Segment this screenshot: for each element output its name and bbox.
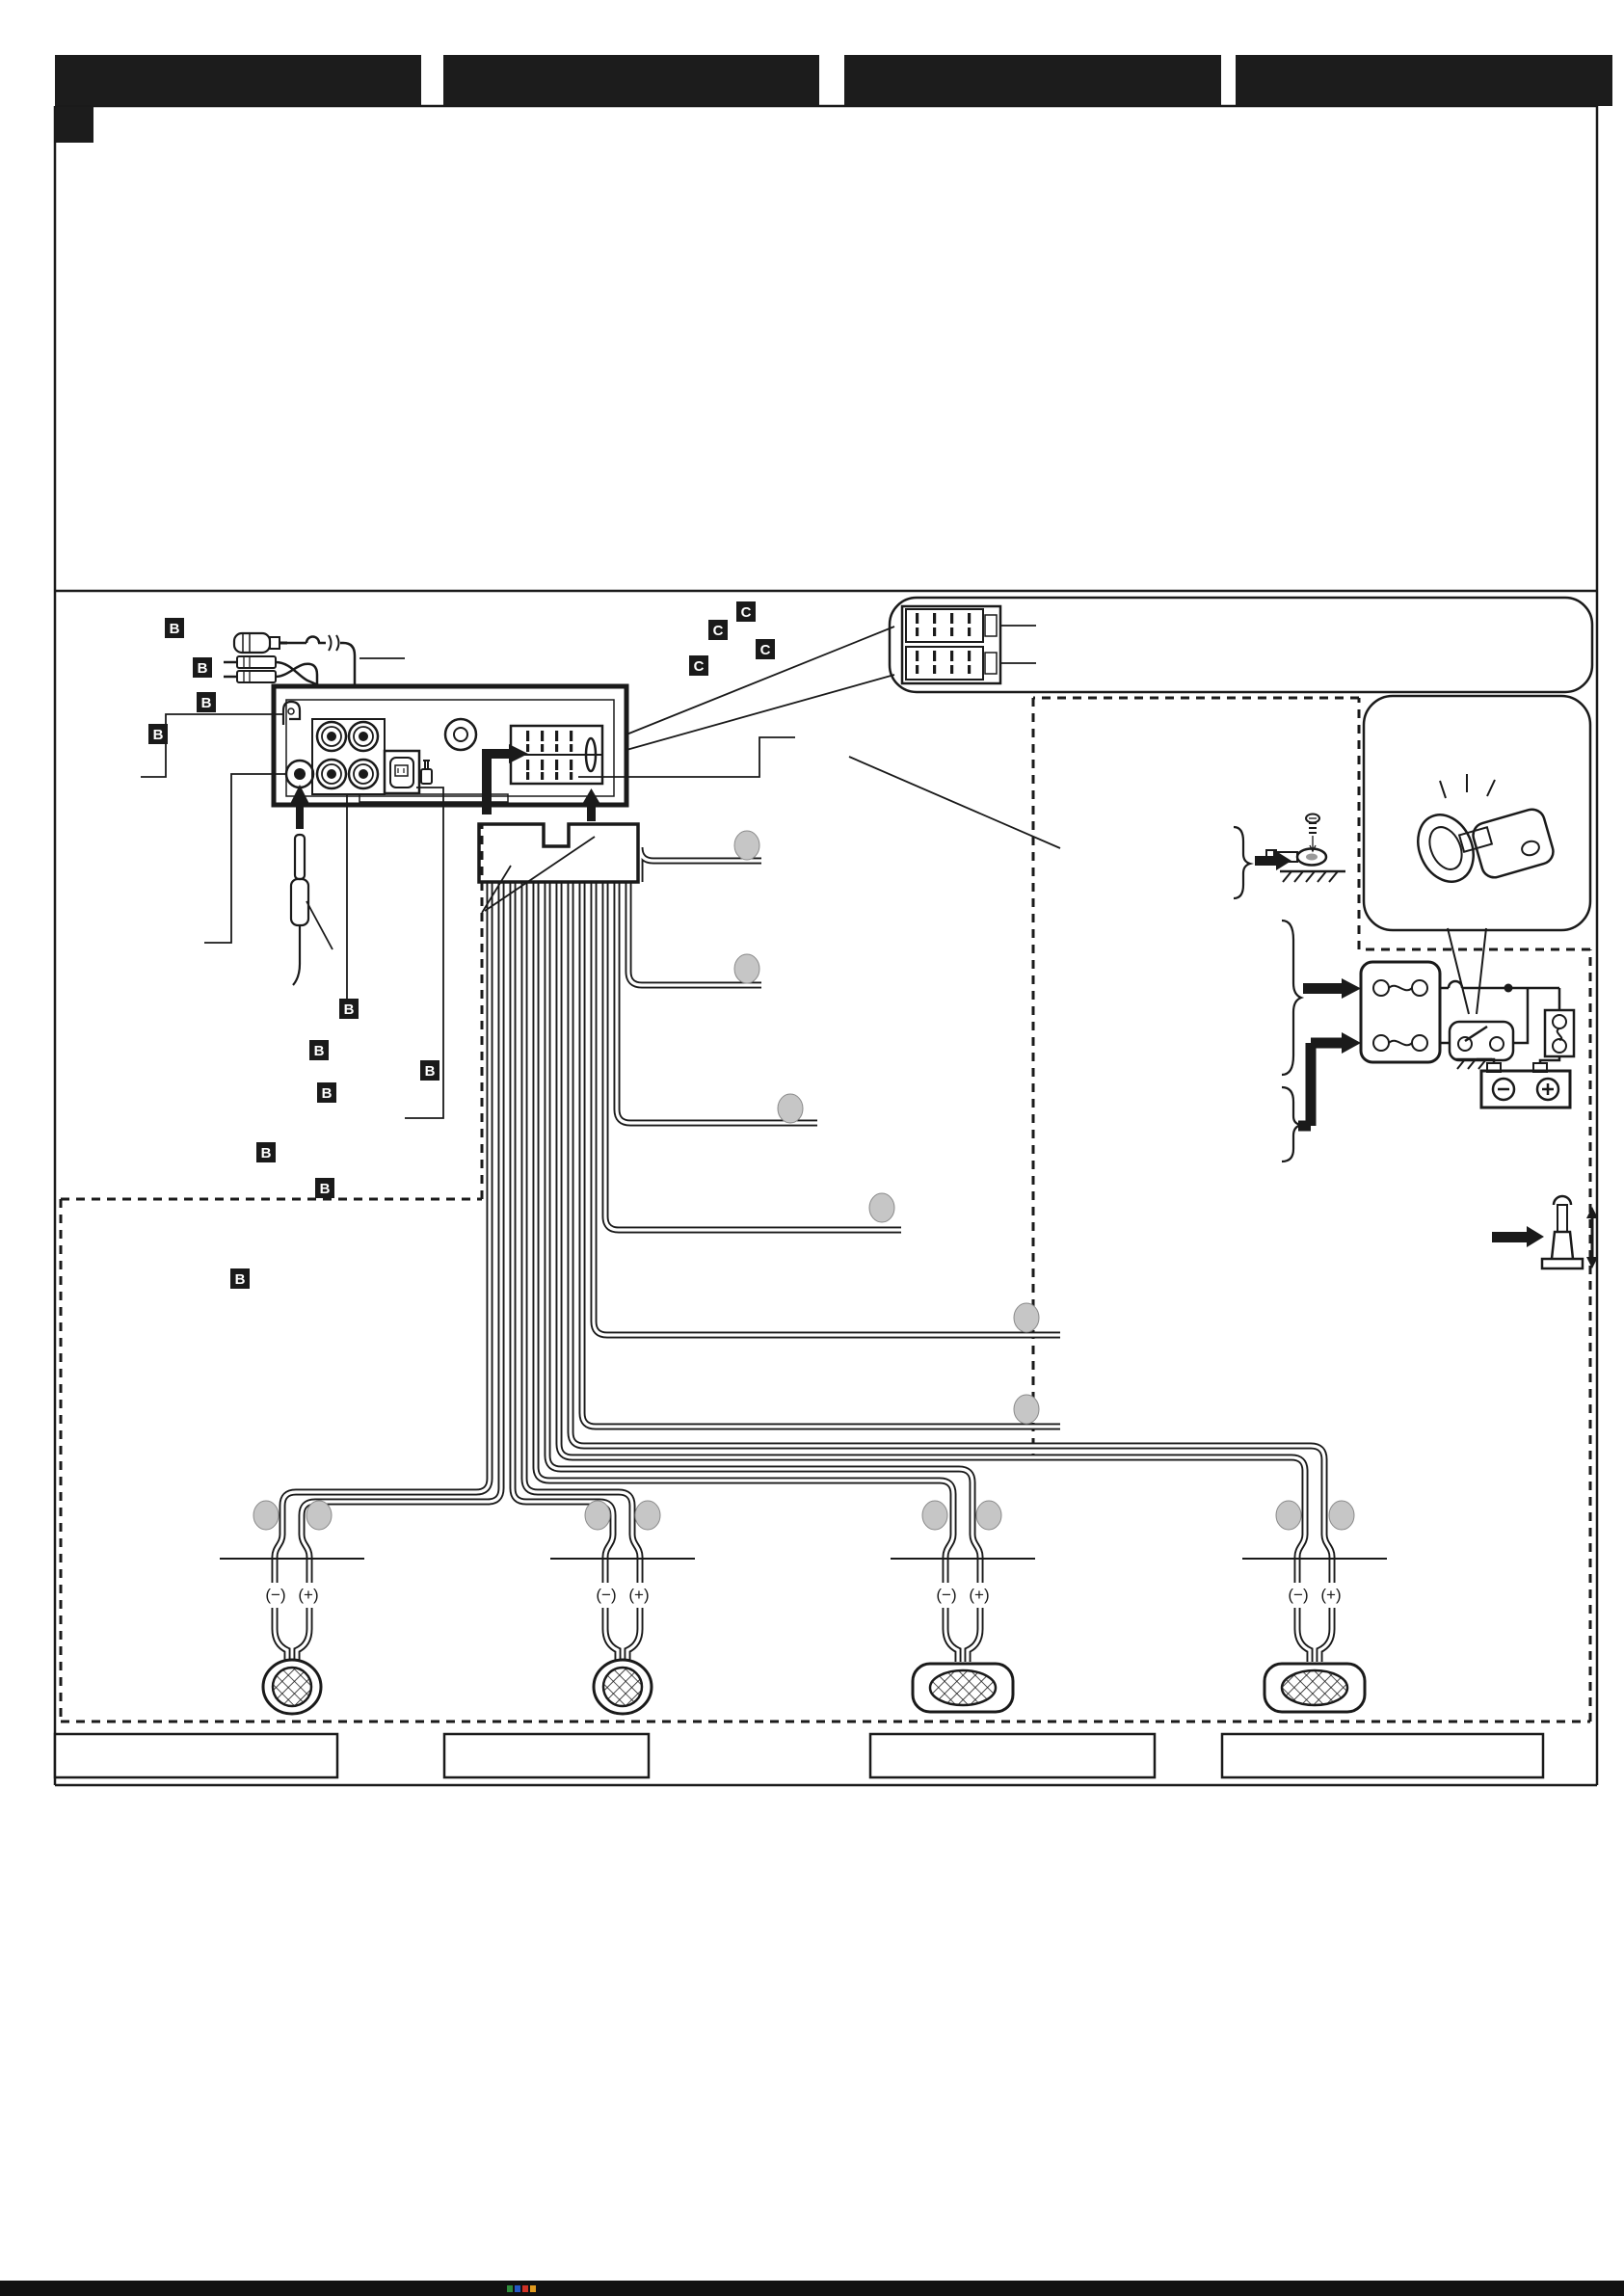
registration-mark	[515, 2285, 520, 2292]
svg-text:B: B	[425, 1063, 436, 1080]
marker-B-11: B	[230, 1268, 250, 1289]
speaker-callout-circle	[635, 1501, 660, 1530]
svg-text:B: B	[314, 1043, 325, 1059]
svg-text:B: B	[320, 1181, 331, 1197]
branch-wire-5	[594, 882, 1060, 1335]
wire-callout-circle-6	[1014, 1395, 1039, 1424]
polarity-label-negative: (−)	[1288, 1586, 1308, 1604]
power-antenna-group	[1492, 1196, 1598, 1268]
marker-C-4: C	[689, 655, 708, 676]
marker-C-2: C	[708, 620, 728, 640]
rca-plug-pair	[224, 656, 321, 686]
svg-text:B: B	[261, 1145, 272, 1161]
registration-mark	[522, 2285, 528, 2292]
brace	[1234, 827, 1250, 898]
marker-B-10: B	[315, 1178, 334, 1198]
brace	[1282, 921, 1301, 1075]
wire-callout-circle-3	[778, 1094, 803, 1123]
footer-label-box-2	[444, 1734, 649, 1777]
wiring-diagram-canvas: (−)(+)(−)(+)(−)(+)(−)(+) BBBBBBBBBBBCCCC	[0, 0, 1624, 2296]
section-number-tab	[55, 106, 93, 143]
marker-B-3: B	[197, 692, 216, 712]
marker-B-8: B	[317, 1082, 336, 1103]
head-unit-rear-panel	[274, 686, 626, 821]
marker-B-4: B	[148, 724, 168, 744]
speaker-callout-circle	[1276, 1501, 1301, 1530]
speaker-callout-circle	[922, 1501, 947, 1530]
svg-text:C: C	[760, 642, 771, 658]
marker-B-7: B	[420, 1060, 439, 1081]
footer-label-box-3	[870, 1734, 1155, 1777]
svg-text:B: B	[170, 621, 180, 637]
svg-text:B: B	[322, 1085, 333, 1102]
print-strip-bar	[0, 2281, 1624, 2296]
ground-terminal-group	[1234, 814, 1345, 899]
branch-wire-6	[582, 882, 1060, 1427]
svg-text:C: C	[694, 658, 705, 675]
marker-B-1: B	[165, 618, 184, 638]
iso-connector-callout	[890, 598, 1592, 692]
key-shine-marks	[1440, 774, 1495, 798]
svg-text:B: B	[198, 660, 208, 677]
svg-text:C: C	[741, 604, 752, 621]
speaker-callout-circle	[1329, 1501, 1354, 1530]
accessory-plug	[421, 761, 432, 784]
antenna-jack	[286, 761, 313, 788]
print-registration-strip	[0, 2281, 1624, 2296]
speaker-wire	[302, 882, 501, 1583]
speaker-callout-circle	[976, 1501, 1001, 1530]
power-circuit	[1282, 921, 1574, 1161]
ignition-key-icon	[1408, 774, 1557, 891]
insert-arrow-up-right	[581, 788, 601, 821]
battery	[1481, 1063, 1570, 1108]
manual-page: (−)(+)(−)(+)(−)(+)(−)(+) BBBBBBBBBBBCCCC	[0, 0, 1624, 2296]
speaker-assemblies: (−)(+)(−)(+)(−)(+)(−)(+)	[220, 1559, 1387, 1714]
screw-icon	[1306, 814, 1319, 852]
harness-wires	[275, 847, 1332, 1583]
polarity-label-positive: (+)	[1320, 1586, 1341, 1604]
polarity-label-negative: (−)	[936, 1586, 956, 1604]
svg-text:B: B	[235, 1271, 246, 1288]
header-title-bars	[55, 55, 1612, 106]
footer-label-boxes	[55, 1734, 1543, 1777]
footer-label-box-1	[55, 1734, 337, 1777]
antenna-plug	[290, 785, 309, 985]
marker-C-1: C	[736, 601, 756, 622]
usb-connector	[385, 751, 419, 793]
svg-text:B: B	[201, 695, 212, 711]
wire-callout-circle-4	[869, 1193, 894, 1222]
main-fuse	[1545, 1010, 1574, 1056]
reference-markers: BBBBBBBBBBBCCCC	[148, 601, 775, 1289]
branch-wire-3	[617, 882, 817, 1123]
speaker-assembly-front-left: (−)(+)	[220, 1559, 364, 1714]
registration-mark	[530, 2285, 536, 2292]
svg-text:C: C	[713, 623, 724, 639]
ignition-key-callout	[1364, 696, 1590, 1014]
power-antenna-icon	[1542, 1196, 1583, 1268]
marker-B-5: B	[339, 999, 359, 1019]
registration-mark	[507, 2285, 513, 2292]
fuse-block	[1361, 962, 1440, 1062]
ring-terminal-icon	[1266, 849, 1326, 866]
marker-B-2: B	[193, 657, 212, 678]
antenna-lead	[234, 633, 355, 686]
speaker-callout-circle	[306, 1501, 332, 1530]
rca-output-jacks	[317, 722, 378, 788]
marker-C-3: C	[756, 639, 775, 659]
header-bar-1	[55, 55, 421, 106]
speaker-assembly-front-right: (−)(+)	[550, 1559, 695, 1714]
antenna-cord	[287, 643, 355, 686]
svg-text:B: B	[153, 727, 164, 743]
speaker-callout-circle	[253, 1501, 279, 1530]
speaker-callout-circle	[585, 1501, 610, 1530]
marker-B-6: B	[309, 1040, 329, 1060]
speaker-assembly-rear-left: (−)(+)	[891, 1559, 1035, 1712]
wire-callout-circle-2	[734, 954, 759, 983]
battery-plus	[1542, 1083, 1554, 1095]
iso-pins	[916, 613, 971, 674]
wire-callout-circle-5	[1014, 1303, 1039, 1332]
header-bar-4	[1236, 55, 1612, 106]
header-bar-2	[443, 55, 819, 106]
polarity-label-positive: (+)	[628, 1586, 649, 1604]
footer-label-box-4	[1222, 1734, 1543, 1777]
wire-callout-circle-1	[734, 831, 759, 860]
speaker-wire	[275, 882, 490, 1583]
header-bar-3	[844, 55, 1221, 106]
svg-text:B: B	[344, 1001, 355, 1018]
branch-wire-4	[605, 882, 901, 1230]
polarity-label-negative: (−)	[596, 1586, 616, 1604]
polarity-label-positive: (+)	[969, 1586, 989, 1604]
polarity-label-negative: (−)	[265, 1586, 285, 1604]
ignition-switch	[1450, 1022, 1513, 1060]
dashed-group-outlines	[61, 698, 1590, 1722]
content-frame	[55, 106, 1597, 1785]
frame-border	[55, 106, 1597, 1785]
marker-B-9: B	[256, 1142, 276, 1162]
speaker-assembly-rear-right: (−)(+)	[1242, 1559, 1387, 1712]
polarity-label-positive: (+)	[298, 1586, 318, 1604]
mounting-hole	[445, 719, 476, 750]
